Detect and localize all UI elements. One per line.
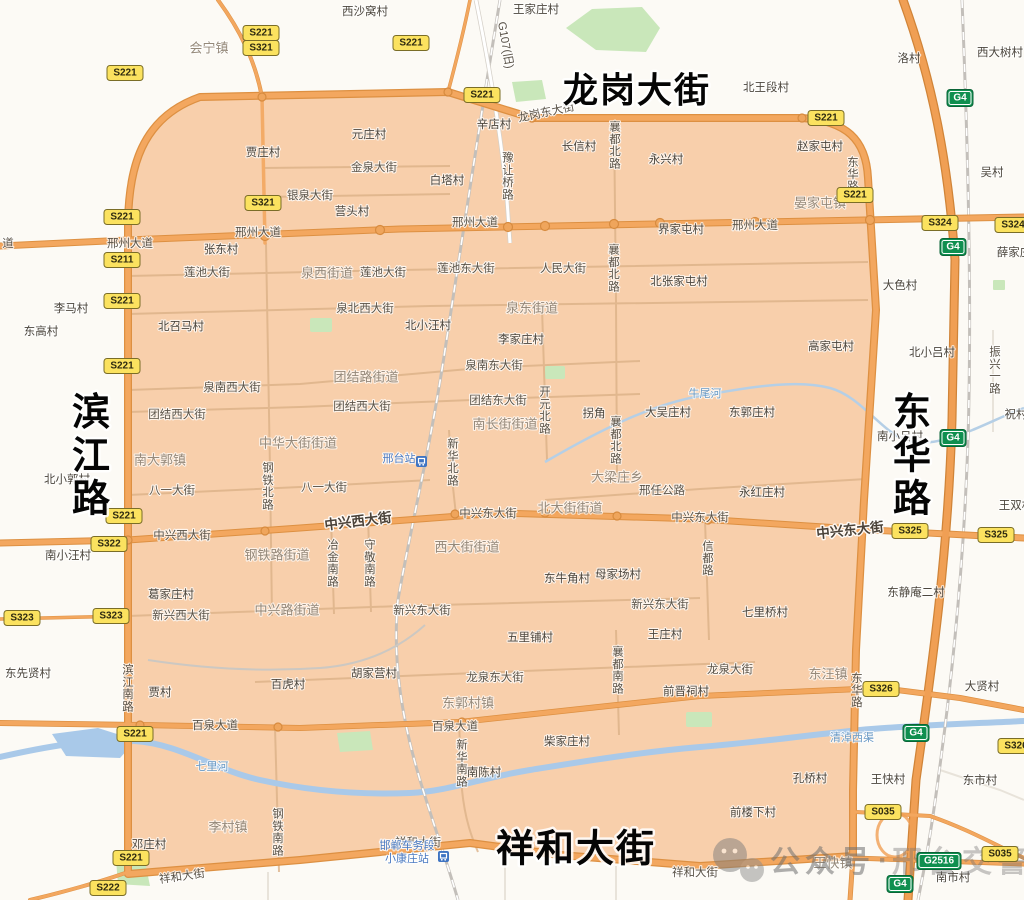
road-label: 团结西大街 bbox=[148, 407, 206, 421]
road-label: 八一大街 bbox=[149, 483, 195, 497]
village-label: 东郭庄村 bbox=[729, 405, 775, 419]
svg-text:S221: S221 bbox=[119, 853, 143, 864]
svg-text:G4: G4 bbox=[946, 242, 960, 253]
road-label: 新华南路 bbox=[456, 738, 468, 789]
district-label: 北大街街道 bbox=[537, 501, 602, 516]
road-label: 龙泉大街 bbox=[707, 662, 753, 676]
village-label: 葛家庄村 bbox=[148, 587, 194, 601]
village-label: 长信村 bbox=[562, 139, 597, 153]
river-label: 牛尾河 bbox=[689, 386, 722, 400]
road-shield-S221: S221 bbox=[808, 111, 844, 126]
district-label: 钢铁路街道 bbox=[244, 548, 309, 563]
road-label: 百泉大道 bbox=[432, 719, 478, 733]
road-shield-G4: G4 bbox=[887, 876, 913, 893]
road-label: 团结东大街 bbox=[469, 393, 527, 407]
village-label: 东牛角村 bbox=[544, 571, 590, 585]
road-label: 金泉大街 bbox=[351, 160, 397, 174]
road-shield-S325: S325 bbox=[978, 528, 1014, 543]
village-label: 祝村 bbox=[1005, 407, 1024, 421]
svg-text:G2516: G2516 bbox=[924, 856, 954, 867]
river-label: 七里河 bbox=[196, 760, 229, 773]
rail-station-icon bbox=[416, 456, 427, 467]
village-label: 七里桥村 bbox=[742, 605, 788, 619]
village-label: 王双村 bbox=[999, 498, 1024, 512]
svg-text:G4: G4 bbox=[946, 433, 960, 444]
road-shield-S221: S221 bbox=[243, 26, 279, 41]
road-label: 团结西大街 bbox=[333, 399, 391, 413]
svg-text:S324: S324 bbox=[928, 218, 952, 229]
svg-text:S323: S323 bbox=[99, 611, 123, 622]
svg-text:S325: S325 bbox=[984, 530, 1008, 541]
village-label: 北王段村 bbox=[743, 80, 789, 94]
village-label: 永红庄村 bbox=[739, 485, 785, 499]
svg-text:S221: S221 bbox=[110, 361, 134, 372]
svg-text:S221: S221 bbox=[470, 90, 494, 101]
district-label: 团结路街道 bbox=[333, 370, 398, 385]
village-label: 贾庄村 bbox=[246, 145, 281, 159]
svg-text:S325: S325 bbox=[898, 526, 922, 537]
road-label: 开元北路 bbox=[539, 387, 551, 436]
svg-text:S321: S321 bbox=[249, 43, 273, 54]
road-label: 冶金南路 bbox=[327, 538, 339, 589]
road-shield-S221: S221 bbox=[104, 210, 140, 225]
svg-text:S221: S221 bbox=[110, 296, 134, 307]
road-shield-S324: S324 bbox=[995, 218, 1024, 233]
village-label: 大吴庄村 bbox=[645, 405, 691, 419]
district-label: 李村镇 bbox=[208, 820, 247, 835]
svg-text:S211: S211 bbox=[111, 255, 134, 266]
road-shield-S325: S325 bbox=[892, 524, 928, 539]
svg-text:S322: S322 bbox=[97, 539, 121, 550]
district-label: 泉西街道 bbox=[301, 266, 353, 281]
road-shield-S221: S221 bbox=[113, 851, 149, 866]
village-label: 李家庄村 bbox=[498, 332, 544, 346]
road-shield-S326: S326 bbox=[998, 739, 1024, 754]
road-label: 百泉大道 bbox=[192, 718, 238, 732]
district-label: 中兴路街道 bbox=[254, 603, 319, 618]
svg-text:G4: G4 bbox=[893, 879, 907, 890]
village-label: 南小汪村 bbox=[45, 548, 91, 562]
district-label: 大梁庄乡 bbox=[591, 470, 643, 485]
village-label: 邓庄村 bbox=[132, 837, 167, 851]
road-label: 莲池大街 bbox=[184, 265, 230, 279]
village-label: 东高村 bbox=[24, 324, 59, 338]
road-label: 振兴一路 bbox=[989, 345, 1001, 396]
village-label: 白塔村 bbox=[430, 173, 465, 187]
road-shield-G4: G4 bbox=[947, 90, 973, 107]
road-label: 道 bbox=[2, 236, 14, 250]
watermark-separator: · bbox=[878, 844, 893, 877]
village-label: 北召马村 bbox=[158, 319, 204, 333]
district-label: 南大郭镇 bbox=[134, 453, 186, 468]
village-label: 北小吕村 bbox=[909, 345, 955, 359]
village-label: 洛村 bbox=[898, 51, 921, 65]
road-label: 襄都北路 bbox=[610, 415, 622, 466]
road-shield-S324: S324 bbox=[922, 216, 958, 231]
road-label: 新兴西大街 bbox=[152, 608, 210, 622]
village-label: 柴家庄村 bbox=[544, 734, 590, 748]
district-label: 会宁镇 bbox=[189, 41, 228, 56]
village-label: 前晋祠村 bbox=[663, 684, 709, 698]
village-label: 吴村 bbox=[981, 165, 1004, 179]
road-shield-S035: S035 bbox=[865, 805, 901, 820]
district-label: 西大街街道 bbox=[434, 540, 499, 555]
village-label: 界家屯村 bbox=[658, 222, 704, 236]
village-label: 东市村 bbox=[963, 773, 998, 787]
village-label: 孔桥村 bbox=[793, 771, 828, 785]
village-label: 大色村 bbox=[883, 278, 918, 292]
road-label: 中兴东大街 bbox=[459, 506, 517, 520]
road-label: 莲池大街 bbox=[360, 265, 406, 279]
svg-text:S221: S221 bbox=[249, 28, 273, 39]
district-label: 中华大街街道 bbox=[259, 436, 337, 451]
village-label: 永兴村 bbox=[649, 152, 684, 166]
big-road-label: 祥和大街 bbox=[496, 828, 656, 870]
big-road-label: 滨江路 bbox=[72, 392, 112, 521]
village-label: 东静庵二村 bbox=[887, 585, 945, 599]
svg-text:S324: S324 bbox=[1001, 220, 1024, 231]
road-label: 新华北路 bbox=[447, 437, 459, 488]
road-label: 银泉大街 bbox=[287, 188, 333, 202]
road-shield-S323: S323 bbox=[93, 609, 129, 624]
road-label: 邢州大道 bbox=[732, 218, 778, 232]
rail-station-icon bbox=[438, 851, 449, 862]
road-label: 中兴东大街 bbox=[671, 510, 729, 524]
road-label: 邢州大道 bbox=[107, 236, 153, 250]
svg-text:S326: S326 bbox=[869, 684, 893, 695]
village-label: 东先贤村 bbox=[5, 666, 51, 680]
rail-station-label: 小康庄站 bbox=[385, 851, 429, 865]
village-label: 胡家营村 bbox=[351, 666, 397, 680]
svg-text:S221: S221 bbox=[112, 511, 136, 522]
svg-text:S035: S035 bbox=[988, 849, 1012, 860]
big-road-label: 东华路 bbox=[893, 392, 933, 521]
road-shield-S321: S321 bbox=[245, 196, 281, 211]
road-label: 泉南西大街 bbox=[203, 380, 261, 394]
district-label: 东郭村镇 bbox=[442, 696, 494, 711]
river-label: 清淖西渠 bbox=[830, 730, 874, 744]
svg-text:S326: S326 bbox=[1004, 741, 1024, 752]
road-shield-S222: S222 bbox=[90, 881, 126, 896]
road-label: 八一大街 bbox=[301, 480, 347, 494]
road-label: 钢铁北路 bbox=[262, 462, 274, 512]
road-shield-S221: S221 bbox=[104, 359, 140, 374]
village-label: 母家场村 bbox=[595, 567, 641, 581]
road-label: 邢任公路 bbox=[639, 483, 685, 497]
rail-station-label: 邢台站 bbox=[383, 451, 416, 465]
svg-text:S321: S321 bbox=[251, 198, 275, 209]
village-label: 南陈村 bbox=[467, 765, 502, 779]
road-shield-S221: S221 bbox=[393, 36, 429, 51]
svg-text:S222: S222 bbox=[96, 883, 120, 894]
map: 龙岗东大街G107(旧)金泉大街银泉大街道邢州大道邢州大道邢州大道邢州大道豫让桥… bbox=[0, 0, 1024, 900]
watermark-text: 公众号 bbox=[770, 846, 875, 879]
road-label: 莲池东大街 bbox=[437, 261, 495, 275]
village-label: 辛店村 bbox=[477, 117, 512, 131]
road-shield-S326: S326 bbox=[863, 682, 899, 697]
svg-text:G4: G4 bbox=[953, 93, 967, 104]
village-label: 百虎村 bbox=[271, 677, 306, 691]
village-label: 大贤村 bbox=[965, 679, 1000, 693]
village-label: 营头村 bbox=[335, 204, 370, 218]
road-shield-G4: G4 bbox=[903, 725, 929, 742]
village-label: 西大树村 bbox=[977, 45, 1023, 59]
road-label: 邢州大道 bbox=[452, 215, 498, 229]
road-shield-S221: S221 bbox=[104, 294, 140, 309]
road-label: 豫让桥路 bbox=[502, 152, 514, 202]
road-shield-G4: G4 bbox=[940, 239, 966, 256]
village-label: 王庄村 bbox=[648, 627, 683, 641]
road-label: 新兴东大街 bbox=[631, 597, 689, 611]
road-label: 邢州大道 bbox=[235, 225, 281, 239]
road-shield-S221: S221 bbox=[837, 188, 873, 203]
road-shield-S035: S035 bbox=[982, 847, 1018, 862]
village-label: 张东村 bbox=[204, 242, 239, 256]
village-label: 北小汪村 bbox=[405, 318, 451, 332]
road-label: 祥和大街 bbox=[672, 865, 718, 879]
road-label: 新兴东大街 bbox=[393, 603, 451, 617]
road-label: 守敬南路 bbox=[364, 538, 376, 589]
restricted-zone bbox=[128, 92, 876, 874]
road-label: 钢铁南路 bbox=[272, 808, 284, 858]
road-label: 滨江南路 bbox=[122, 663, 134, 714]
road-label: 泉北西大街 bbox=[336, 301, 394, 315]
road-label: 东华路 bbox=[851, 672, 863, 709]
road-label: 襄都北路 bbox=[609, 120, 621, 171]
village-label: 贾村 bbox=[149, 685, 172, 699]
district-label: 南长街街道 bbox=[472, 417, 537, 432]
road-label: 中兴西大街 bbox=[153, 528, 211, 542]
road-shield-S211: S211 bbox=[104, 253, 140, 268]
road-shield-S221: S221 bbox=[107, 66, 143, 81]
village-label: 薛家庄 bbox=[997, 245, 1024, 259]
road-shield-S321: S321 bbox=[243, 41, 279, 56]
village-label: 北张家屯村 bbox=[650, 274, 708, 288]
svg-text:S221: S221 bbox=[110, 212, 134, 223]
road-label: 龙泉东大街 bbox=[466, 670, 524, 684]
svg-text:S221: S221 bbox=[123, 729, 147, 740]
svg-text:S221: S221 bbox=[814, 113, 838, 124]
svg-text:G4: G4 bbox=[909, 728, 923, 739]
village-label: 拐角 bbox=[583, 406, 606, 420]
big-road-label: 龙岗大街 bbox=[563, 71, 711, 110]
road-label: 信都路 bbox=[702, 540, 714, 577]
road-shield-S322: S322 bbox=[91, 537, 127, 552]
village-label: 五里铺村 bbox=[507, 630, 553, 644]
road-label: 襄都南路 bbox=[612, 645, 624, 696]
svg-text:S035: S035 bbox=[871, 807, 895, 818]
district-label: 泉东街道 bbox=[506, 301, 558, 316]
svg-text:S221: S221 bbox=[113, 68, 137, 79]
village-label: 赵家屯村 bbox=[797, 139, 843, 153]
village-label: 前楼下村 bbox=[730, 805, 776, 819]
svg-text:S323: S323 bbox=[10, 613, 34, 624]
road-label: 泉南东大街 bbox=[465, 358, 523, 372]
svg-text:S221: S221 bbox=[399, 38, 423, 49]
road-shield-S323: S323 bbox=[4, 611, 40, 626]
rail-station-label: 邯郸车务段 bbox=[380, 838, 435, 852]
road-shield-G4: G4 bbox=[940, 430, 966, 447]
road-shield-S221: S221 bbox=[117, 727, 153, 742]
road-shield-S221: S221 bbox=[464, 88, 500, 103]
village-label: 李马村 bbox=[54, 301, 89, 315]
village-label: 王家庄村 bbox=[513, 2, 559, 16]
village-label: 王快村 bbox=[871, 772, 906, 786]
road-label: 人民大街 bbox=[540, 261, 586, 275]
svg-text:S221: S221 bbox=[843, 190, 867, 201]
road-label: 襄都北路 bbox=[608, 243, 620, 294]
district-label: 东汪镇 bbox=[808, 667, 847, 682]
village-label: 西沙窝村 bbox=[342, 4, 388, 18]
village-label: 元庄村 bbox=[352, 127, 387, 141]
road-shield-G2516: G2516 bbox=[917, 853, 961, 870]
village-label: 高家屯村 bbox=[808, 339, 854, 353]
